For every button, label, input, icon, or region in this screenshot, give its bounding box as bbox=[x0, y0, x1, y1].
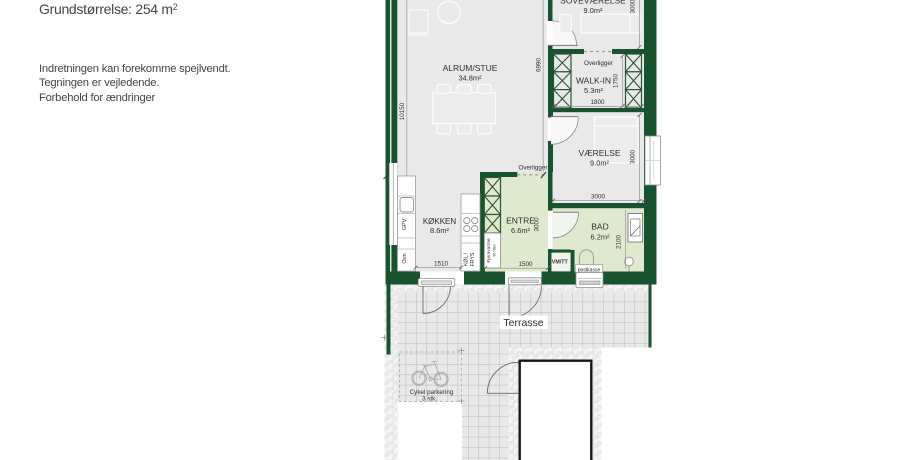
svg-text:60-70kw: 60-70kw bbox=[493, 244, 497, 257]
svg-text:34.8m²: 34.8m² bbox=[458, 74, 482, 83]
svg-text:ALRUM/STUE: ALRUM/STUE bbox=[443, 63, 498, 73]
svg-text:GPV: GPV bbox=[402, 218, 408, 230]
svg-text:Overligger: Overligger bbox=[584, 60, 613, 67]
svg-text:3 stk.: 3 stk. bbox=[422, 396, 437, 403]
svg-text:3000: 3000 bbox=[630, 150, 637, 165]
svg-text:6990: 6990 bbox=[536, 58, 543, 73]
svg-text:3000: 3000 bbox=[591, 194, 606, 201]
svg-text:8.6m²: 8.6m² bbox=[430, 226, 449, 235]
svg-text:2100: 2100 bbox=[616, 235, 623, 250]
svg-text:5.3m²: 5.3m² bbox=[584, 86, 603, 95]
svg-text:6.6m²: 6.6m² bbox=[511, 226, 530, 235]
svg-text:3000: 3000 bbox=[630, 0, 637, 14]
svg-text:Fjernvarme: Fjernvarme bbox=[486, 238, 492, 263]
svg-text:3000: 3000 bbox=[534, 217, 541, 232]
svg-text:9.0m²: 9.0m² bbox=[590, 159, 609, 168]
svg-text:1510: 1510 bbox=[434, 260, 449, 267]
svg-text:BAD: BAD bbox=[591, 222, 608, 232]
svg-text:FRYS: FRYS bbox=[470, 252, 476, 266]
svg-text:1750: 1750 bbox=[613, 74, 620, 89]
svg-text:ENTRE: ENTRE bbox=[506, 216, 535, 226]
svg-text:SOVEVÆRELSE: SOVEVÆRELSE bbox=[560, 0, 626, 6]
svg-text:VÆRELSE: VÆRELSE bbox=[578, 148, 620, 158]
svg-text:KØKKEN: KØKKEN bbox=[423, 217, 457, 226]
svg-text:Ovn: Ovn bbox=[402, 253, 408, 263]
svg-text:1500: 1500 bbox=[518, 261, 533, 268]
svg-text:WALK-IN: WALK-IN bbox=[576, 76, 611, 86]
svg-text:KØL /: KØL / bbox=[463, 252, 469, 266]
svg-text:VM/TT: VM/TT bbox=[552, 259, 569, 265]
svg-text:6.2m²: 6.2m² bbox=[591, 233, 610, 242]
svg-text:10150: 10150 bbox=[399, 102, 406, 120]
svg-text:Terrasse: Terrasse bbox=[503, 317, 543, 329]
svg-text:1800: 1800 bbox=[590, 99, 605, 106]
